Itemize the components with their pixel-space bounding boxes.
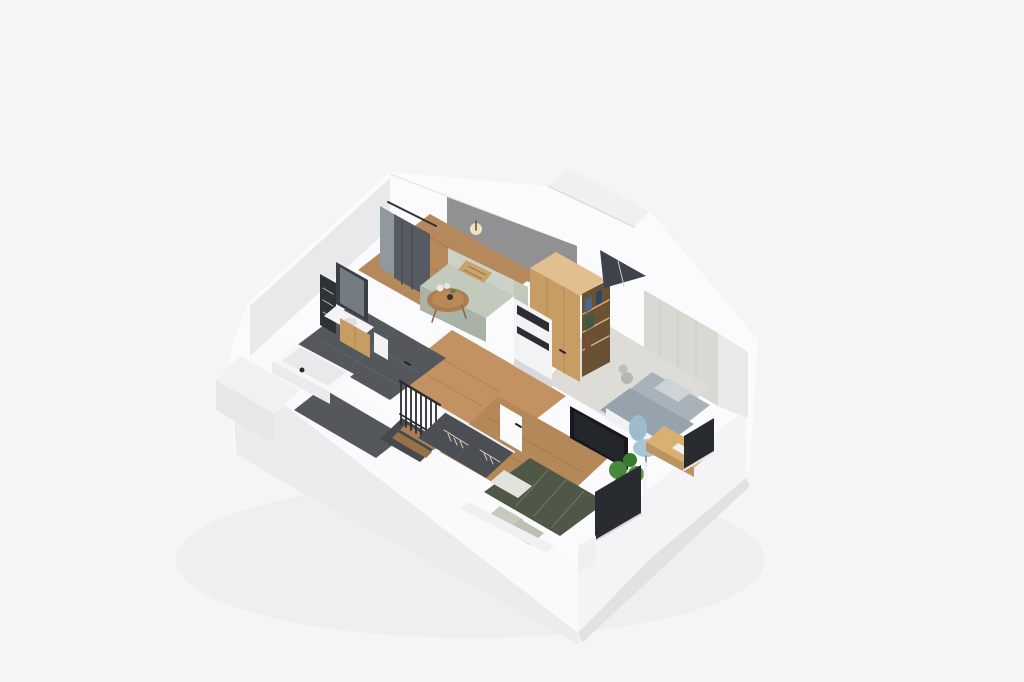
flower-leaves (451, 289, 456, 294)
floor-plan-render (0, 0, 1024, 682)
mosaic-tile-strip (320, 274, 336, 334)
teddy-bear-body (621, 372, 633, 384)
curtain-sheer-panel (380, 206, 394, 276)
floor-plan-svg (0, 0, 1024, 682)
teddy-bear-head (619, 365, 628, 374)
flower-bunch-1 (437, 285, 444, 292)
bathtub-faucet (300, 368, 305, 373)
flower-bunch-2 (444, 283, 450, 289)
desk-chair-back (629, 415, 647, 441)
table-bowl (447, 294, 453, 300)
plant-foliage-2 (623, 453, 637, 467)
